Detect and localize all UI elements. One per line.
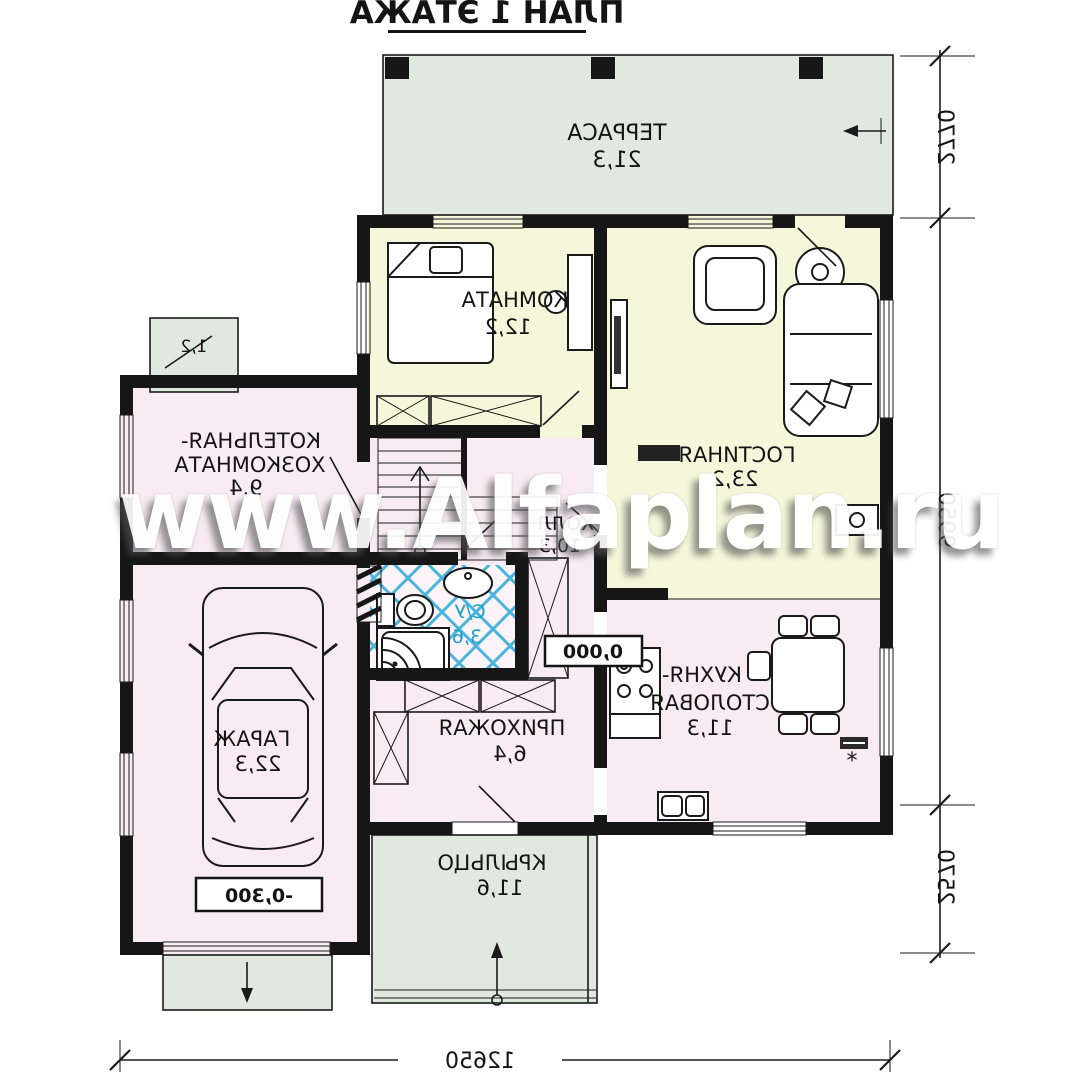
sofa xyxy=(784,284,878,436)
garage-label: ГАРАЖ xyxy=(213,727,290,751)
window xyxy=(713,822,806,835)
kitchen-sink xyxy=(658,792,708,820)
porch-label: КРЫЛЬЦО xyxy=(437,851,546,875)
hallway-label: ПРИХОЖАЯ xyxy=(439,716,566,740)
hall-area: 10,3 xyxy=(539,535,581,557)
terrace-label: ТЕРРАСА xyxy=(567,121,667,146)
boiler-area: 9,4 xyxy=(229,476,262,500)
living-area: 23,2 xyxy=(712,467,759,491)
front-door-threshold xyxy=(452,822,518,835)
window xyxy=(880,648,893,756)
level-main: 0,000 xyxy=(563,641,623,663)
radiator xyxy=(840,737,868,749)
plan-title-text: ПЛАН 1 ЭТАЖА xyxy=(350,0,625,31)
bathroom-label: С/У xyxy=(454,601,486,623)
bedroom-area: 12,2 xyxy=(485,315,532,339)
fireplace xyxy=(638,445,680,461)
hall-label: ХОЛЛ xyxy=(538,513,595,535)
dim-right-middle: 9950 xyxy=(933,492,958,548)
bathroom-sink xyxy=(444,568,492,598)
boiler-label-1: КОТЕЛЬНАЯ- xyxy=(181,429,321,453)
kitchen-area: 11,3 xyxy=(687,716,734,740)
window xyxy=(880,300,893,418)
level-garage: -0,300 xyxy=(225,885,293,907)
tv-stand xyxy=(611,300,627,388)
bedroom-label: КОМНАТА xyxy=(461,288,569,312)
garage-area: 22,3 xyxy=(235,752,282,776)
living-label: ГОСТИНАЯ xyxy=(678,443,795,467)
plan-title: ПЛАН 1 ЭТАЖА xyxy=(350,0,625,33)
bathroom-area: 3,6 xyxy=(452,626,482,648)
boiler-label-2: ХОЗКОМНАТА xyxy=(174,453,326,477)
stoop-area: 1,2 xyxy=(180,337,207,357)
dim-right-bottom: 2570 xyxy=(932,849,957,905)
side-table xyxy=(836,505,878,535)
kitchen-label-1: КУХНЯ- xyxy=(662,663,742,687)
kitchen-star-mark: * xyxy=(847,749,858,774)
dim-right-top: 2770 xyxy=(932,109,957,165)
kitchen-label-2: СТОЛОВАЯ xyxy=(650,691,770,715)
hallway-area: 6,4 xyxy=(493,742,526,766)
armchair xyxy=(694,246,776,324)
dim-bottom: 12650 xyxy=(445,1049,515,1074)
terrace-area: 21,3 xyxy=(593,148,642,173)
porch-area: 11,6 xyxy=(477,876,524,900)
toilet xyxy=(377,594,433,626)
floor-plan: 0,000 -0,300 ТЕРРАСА 21,3 КОМНАТА 12,2 Г… xyxy=(0,0,1080,1080)
floor-plan-page: 0,000 -0,300 ТЕРРАСА 21,3 КОМНАТА 12,2 Г… xyxy=(0,0,1080,1080)
